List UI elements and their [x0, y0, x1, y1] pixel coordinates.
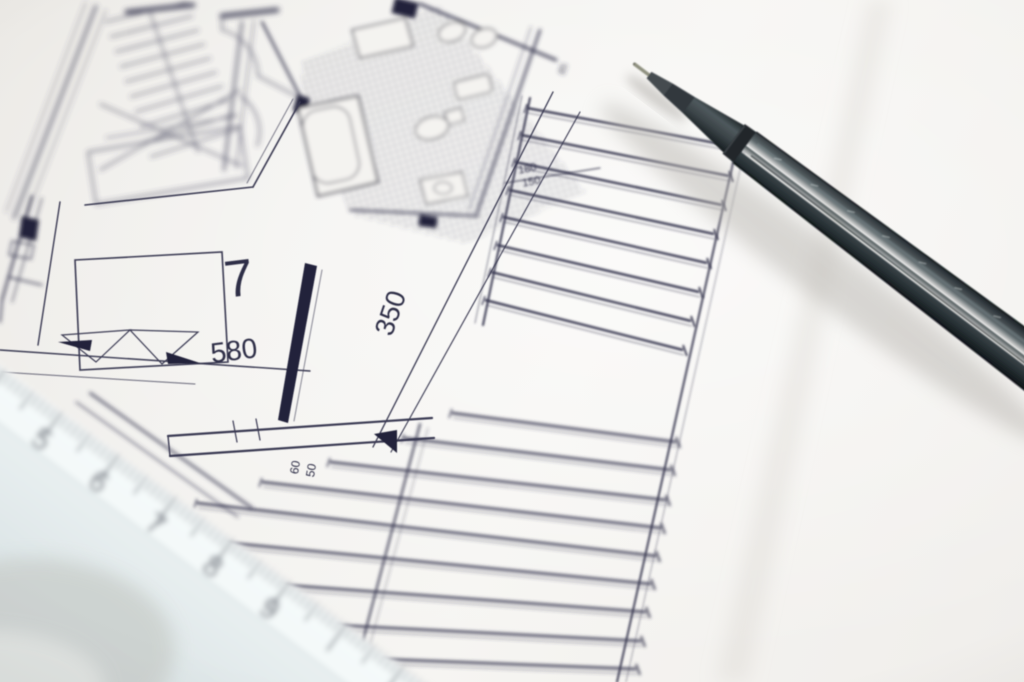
generated-line [494, 241, 497, 250]
pen-needle [635, 64, 651, 76]
dim-60-label: 60 [287, 459, 303, 475]
generated-line [331, 467, 667, 505]
paper-edge-shadow [716, 0, 892, 682]
dimension-arrow-left [58, 340, 92, 351]
generated-line [504, 222, 708, 268]
generated-line [651, 579, 655, 590]
dimension-arrow-right [166, 352, 200, 364]
door-arc-2 [240, 96, 260, 146]
wall-fill-wedge [19, 216, 39, 241]
scene-svg: 85 180 150 7 580 [0, 0, 1024, 682]
bed [62, 252, 228, 370]
dimension-350-label: 350 [369, 287, 412, 339]
generated-line [404, 438, 671, 470]
generated-line [135, 86, 223, 112]
generated-line [262, 482, 661, 528]
generated-line [198, 508, 657, 561]
generated-line [259, 478, 262, 487]
generated-line [636, 664, 640, 675]
generated-line [401, 434, 404, 443]
generated-line [497, 245, 699, 292]
generated-line [641, 636, 645, 647]
photo-canvas: 85 180 150 7 580 [0, 0, 1024, 682]
generated-line [503, 217, 707, 263]
left-wall [0, 196, 42, 322]
generated-line [646, 607, 650, 618]
generated-line [197, 503, 656, 556]
dim-50-label: 50 [303, 462, 319, 478]
dimension-580: 580 [0, 332, 310, 384]
dim-85-label: 85 [557, 62, 571, 77]
generated-line [130, 72, 217, 97]
dimension-580-label: 580 [209, 332, 259, 368]
generated-line [661, 523, 665, 534]
bathroom: 85 [262, 0, 585, 243]
sink-basin-2 [469, 25, 500, 51]
wall-thick-stroke [278, 263, 317, 423]
generated-line [452, 413, 676, 442]
generated-line [498, 250, 700, 297]
generated-line [656, 551, 660, 562]
generated-line [453, 418, 677, 447]
pen [618, 42, 1024, 396]
generated-line [110, 16, 193, 37]
generated-line [485, 300, 683, 350]
generated-line [449, 409, 452, 418]
wall-fill-top [391, 0, 418, 19]
room-number-label: 7 [221, 249, 257, 310]
generated-line [405, 443, 672, 475]
generated-line [194, 499, 197, 508]
generated-line [327, 458, 330, 467]
generated-line [482, 296, 485, 305]
staircase-drawing [6, 2, 300, 222]
